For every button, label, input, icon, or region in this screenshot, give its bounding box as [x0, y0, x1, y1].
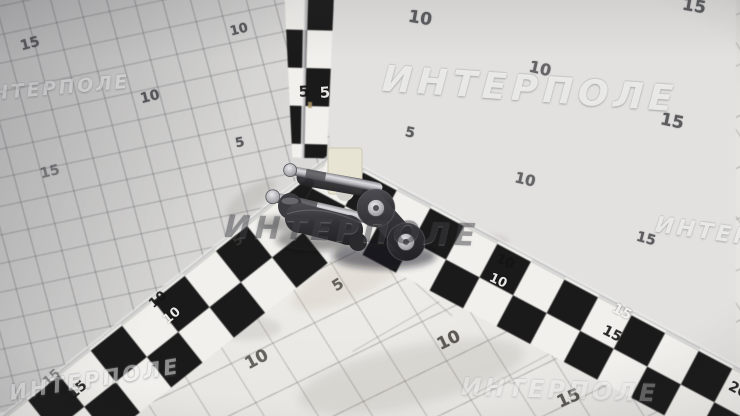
grid-number-label: 15 [681, 0, 707, 17]
grid-number-label: 5 [298, 84, 309, 100]
grid-number-label: 10 [407, 9, 433, 30]
product-photo-scene: 1510105155510101515510155510101510101515… [0, 0, 740, 416]
chain-connecting-link-product [244, 144, 444, 274]
watermark-text: ИНТЕРПОЛЕ [224, 212, 480, 252]
strip-tape-mark [308, 102, 312, 108]
grid-number-label: 5 [319, 85, 330, 101]
grid-number-label: 10 [513, 170, 537, 189]
watermark-text: ИНТЕРПОЛЕ [461, 375, 659, 406]
